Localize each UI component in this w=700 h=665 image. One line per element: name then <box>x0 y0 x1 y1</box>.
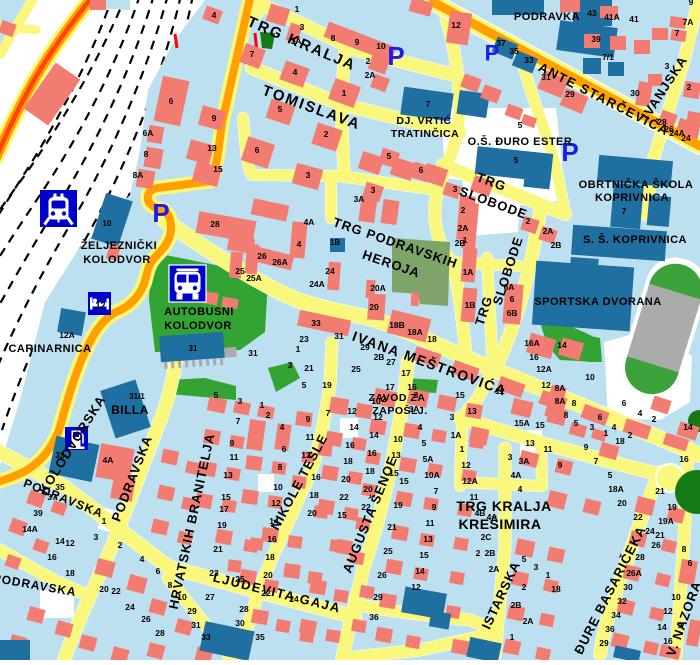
svg-text:22: 22 <box>111 586 121 596</box>
svg-text:3: 3 <box>450 412 455 422</box>
svg-text:KOLODVOR: KOLODVOR <box>83 254 151 266</box>
svg-text:15: 15 <box>455 390 465 400</box>
svg-text:14A: 14A <box>22 524 38 534</box>
svg-text:10: 10 <box>103 219 112 228</box>
svg-text:5: 5 <box>518 120 523 130</box>
svg-text:16: 16 <box>679 454 689 464</box>
svg-text:SPORTSKA DVORANA: SPORTSKA DVORANA <box>534 296 661 308</box>
svg-text:24: 24 <box>289 594 299 604</box>
svg-text:4A: 4A <box>304 217 315 227</box>
svg-text:28: 28 <box>239 604 249 614</box>
svg-text:14: 14 <box>349 422 359 432</box>
svg-text:1B: 1B <box>465 300 476 310</box>
svg-text:18: 18 <box>615 436 625 446</box>
svg-text:1: 1 <box>296 344 301 354</box>
svg-text:31/1: 31/1 <box>129 392 145 401</box>
svg-text:21: 21 <box>655 530 665 540</box>
svg-text:3: 3 <box>306 170 311 180</box>
svg-text:15: 15 <box>221 492 231 502</box>
svg-text:26: 26 <box>257 251 267 261</box>
svg-text:14: 14 <box>557 340 567 350</box>
svg-text:2: 2 <box>461 205 466 215</box>
svg-text:4: 4 <box>280 422 285 432</box>
svg-text:6B: 6B <box>507 308 518 318</box>
svg-text:5: 5 <box>522 554 527 564</box>
svg-text:12: 12 <box>373 412 383 422</box>
svg-text:12: 12 <box>461 460 471 470</box>
svg-text:DJ. VRTIĆ: DJ. VRTIĆ <box>396 114 451 127</box>
svg-text:30: 30 <box>623 582 633 592</box>
svg-text:43: 43 <box>587 8 597 18</box>
svg-text:KOLODVOR: KOLODVOR <box>164 320 232 332</box>
svg-text:7: 7 <box>236 416 241 426</box>
svg-text:8: 8 <box>564 410 569 420</box>
svg-text:4A: 4A <box>487 512 498 522</box>
svg-text:3: 3 <box>414 390 419 400</box>
svg-text:3: 3 <box>238 396 243 406</box>
svg-text:2B: 2B <box>551 240 562 250</box>
svg-text:29: 29 <box>360 342 370 352</box>
svg-text:15: 15 <box>337 510 347 520</box>
svg-text:2B: 2B <box>374 352 385 362</box>
svg-text:37: 37 <box>47 492 57 502</box>
svg-text:8: 8 <box>682 544 687 554</box>
svg-text:2B: 2B <box>485 548 496 558</box>
svg-text:3A: 3A <box>409 404 420 414</box>
svg-text:14: 14 <box>683 422 693 432</box>
svg-text:2: 2 <box>366 56 371 66</box>
svg-text:22: 22 <box>361 502 371 512</box>
svg-text:30: 30 <box>235 618 245 628</box>
svg-text:P: P <box>152 198 169 228</box>
svg-text:17: 17 <box>219 504 229 514</box>
svg-text:16: 16 <box>47 552 57 562</box>
svg-text:21: 21 <box>213 544 223 554</box>
svg-text:33: 33 <box>56 451 65 460</box>
svg-text:31: 31 <box>334 331 344 341</box>
svg-text:6: 6 <box>688 558 693 568</box>
svg-text:11: 11 <box>426 518 435 528</box>
svg-text:2: 2 <box>266 410 271 420</box>
svg-text:16: 16 <box>311 472 321 482</box>
svg-text:6: 6 <box>419 165 424 175</box>
svg-text:AUTOBUSNI: AUTOBUSNI <box>164 306 234 318</box>
svg-text:18: 18 <box>65 568 75 578</box>
svg-text:35: 35 <box>55 482 65 492</box>
svg-text:2C: 2C <box>481 532 492 542</box>
svg-text:18: 18 <box>343 456 353 466</box>
svg-text:2: 2 <box>628 430 633 440</box>
svg-text:5: 5 <box>214 390 219 400</box>
svg-text:20: 20 <box>341 474 351 484</box>
svg-text:5: 5 <box>387 151 392 161</box>
svg-text:22: 22 <box>633 512 643 522</box>
svg-text:12: 12 <box>411 582 421 592</box>
svg-text:28: 28 <box>635 552 645 562</box>
svg-text:31: 31 <box>248 348 258 358</box>
svg-text:34: 34 <box>611 610 621 620</box>
svg-text:16: 16 <box>663 636 673 646</box>
svg-text:3: 3 <box>288 360 293 370</box>
svg-text:10: 10 <box>393 434 403 444</box>
svg-text:26A: 26A <box>272 257 288 267</box>
svg-text:1: 1 <box>342 88 347 98</box>
svg-text:9: 9 <box>306 414 311 424</box>
svg-text:31: 31 <box>541 72 551 82</box>
svg-text:16: 16 <box>345 440 355 450</box>
svg-text:2: 2 <box>118 540 123 550</box>
svg-text:6: 6 <box>169 96 174 106</box>
svg-text:3: 3 <box>300 22 305 32</box>
svg-text:21: 21 <box>387 522 397 532</box>
svg-text:18: 18 <box>365 466 375 476</box>
svg-text:11: 11 <box>306 432 315 442</box>
svg-text:4A: 4A <box>103 455 114 465</box>
svg-text:30: 30 <box>630 88 640 98</box>
svg-text:17: 17 <box>385 382 395 392</box>
svg-text:15: 15 <box>535 420 545 430</box>
svg-text:2: 2 <box>652 414 657 424</box>
svg-text:26: 26 <box>377 570 387 580</box>
svg-text:8: 8 <box>572 398 577 408</box>
svg-text:2A: 2A <box>489 564 500 574</box>
svg-text:S. Š. KOPRIVNICA: S. Š. KOPRIVNICA <box>583 233 687 246</box>
svg-text:15: 15 <box>419 550 429 560</box>
svg-text:20: 20 <box>99 584 109 594</box>
svg-text:4: 4 <box>638 408 643 418</box>
svg-text:4B: 4B <box>475 508 486 518</box>
svg-text:10: 10 <box>671 592 681 602</box>
svg-text:15: 15 <box>213 164 223 174</box>
svg-text:27: 27 <box>386 357 396 367</box>
svg-text:1: 1 <box>604 428 609 438</box>
svg-text:33: 33 <box>311 318 321 328</box>
svg-text:14: 14 <box>369 430 379 440</box>
svg-text:5: 5 <box>302 380 307 390</box>
svg-text:7: 7 <box>622 207 627 216</box>
svg-text:13: 13 <box>223 470 233 480</box>
svg-text:6: 6 <box>156 566 161 576</box>
svg-text:1: 1 <box>295 4 300 14</box>
svg-text:1: 1 <box>510 632 515 642</box>
svg-text:KOPRIVNICA: KOPRIVNICA <box>595 192 669 204</box>
svg-text:P: P <box>387 41 404 71</box>
svg-text:12: 12 <box>65 538 75 548</box>
svg-text:3A: 3A <box>291 36 302 46</box>
svg-text:7/1: 7/1 <box>602 52 614 62</box>
svg-text:17: 17 <box>401 368 411 378</box>
svg-text:33: 33 <box>524 55 534 65</box>
svg-text:41: 41 <box>629 14 639 24</box>
svg-text:3: 3 <box>453 184 458 194</box>
svg-text:29: 29 <box>187 606 197 616</box>
svg-text:2A: 2A <box>458 223 469 233</box>
svg-text:19A: 19A <box>658 516 674 526</box>
svg-text:18B: 18B <box>389 320 405 330</box>
svg-text:12: 12 <box>271 498 281 508</box>
svg-text:7: 7 <box>426 100 431 109</box>
svg-text:5: 5 <box>514 156 519 165</box>
svg-text:31: 31 <box>189 344 198 353</box>
svg-text:27: 27 <box>205 592 215 602</box>
svg-text:5: 5 <box>278 104 283 114</box>
svg-text:36: 36 <box>605 624 615 634</box>
svg-text:14: 14 <box>55 536 65 546</box>
svg-text:5A: 5A <box>423 454 434 464</box>
svg-text:26: 26 <box>141 614 151 624</box>
svg-text:3: 3 <box>94 532 99 542</box>
svg-text:8A: 8A <box>133 170 144 180</box>
svg-text:2: 2 <box>687 82 692 92</box>
svg-text:9: 9 <box>432 502 437 512</box>
svg-text:15: 15 <box>399 476 409 486</box>
svg-text:11: 11 <box>470 492 479 502</box>
svg-text:21: 21 <box>655 486 665 496</box>
svg-text:12A: 12A <box>462 476 478 486</box>
svg-text:4: 4 <box>140 554 145 564</box>
svg-text:9: 9 <box>678 620 683 630</box>
svg-text:12A: 12A <box>59 330 75 340</box>
svg-text:10: 10 <box>585 372 595 382</box>
svg-text:29: 29 <box>599 638 609 648</box>
svg-text:23: 23 <box>299 334 309 344</box>
svg-text:24: 24 <box>325 266 335 276</box>
svg-text:8: 8 <box>278 462 283 472</box>
svg-text:CARINARNICA: CARINARNICA <box>8 343 91 355</box>
svg-text:35: 35 <box>509 46 519 56</box>
svg-text:19: 19 <box>667 502 677 512</box>
svg-text:O.Š. ĐURO ESTER: O.Š. ĐURO ESTER <box>468 135 573 148</box>
svg-text:1: 1 <box>260 400 265 410</box>
svg-text:4: 4 <box>293 67 298 77</box>
svg-text:3: 3 <box>371 185 376 195</box>
svg-text:26A: 26A <box>626 568 642 578</box>
svg-text:19: 19 <box>393 500 403 510</box>
svg-text:6: 6 <box>282 444 287 454</box>
svg-text:41A: 41A <box>604 12 620 22</box>
svg-text:4A: 4A <box>511 470 522 480</box>
svg-text:3A: 3A <box>519 456 530 466</box>
svg-text:OBRTNIČKA ŠKOLA: OBRTNIČKA ŠKOLA <box>579 178 694 191</box>
svg-text:5: 5 <box>574 418 579 428</box>
svg-text:9: 9 <box>689 0 694 7</box>
svg-text:18A: 18A <box>608 484 624 494</box>
svg-text:7A: 7A <box>683 17 694 27</box>
svg-text:13: 13 <box>467 406 477 416</box>
svg-text:3: 3 <box>665 61 670 71</box>
svg-text:20: 20 <box>263 570 273 580</box>
svg-text:7: 7 <box>250 49 255 59</box>
svg-text:20A: 20A <box>370 283 386 293</box>
svg-text:39: 39 <box>33 508 43 518</box>
svg-text:25A: 25A <box>246 273 262 283</box>
svg-text:6: 6 <box>622 398 627 408</box>
svg-text:32: 32 <box>617 596 627 606</box>
svg-text:8A: 8A <box>555 383 566 393</box>
svg-text:25: 25 <box>383 546 393 556</box>
svg-text:11: 11 <box>230 452 239 462</box>
svg-text:16: 16 <box>367 448 377 458</box>
svg-text:20: 20 <box>617 498 627 508</box>
svg-text:10: 10 <box>376 41 386 51</box>
svg-text:4: 4 <box>418 422 423 432</box>
svg-text:9: 9 <box>558 460 563 470</box>
svg-text:20: 20 <box>369 302 379 312</box>
svg-text:9: 9 <box>355 37 360 47</box>
svg-text:20: 20 <box>307 508 317 518</box>
svg-text:39: 39 <box>591 34 601 44</box>
svg-text:9: 9 <box>212 113 217 123</box>
svg-text:28: 28 <box>155 628 165 638</box>
svg-text:5: 5 <box>608 470 613 480</box>
svg-text:26: 26 <box>651 540 661 550</box>
svg-text:4: 4 <box>518 484 523 494</box>
svg-text:2: 2 <box>522 582 527 592</box>
svg-text:22: 22 <box>339 492 349 502</box>
svg-text:1A: 1A <box>451 430 462 440</box>
svg-text:2B: 2B <box>455 238 466 248</box>
svg-text:15A: 15A <box>514 418 530 428</box>
svg-text:24A: 24A <box>309 279 325 289</box>
svg-text:2B: 2B <box>511 600 522 610</box>
svg-text:6: 6 <box>255 145 260 155</box>
svg-text:8: 8 <box>331 33 336 43</box>
svg-text:2: 2 <box>526 216 531 226</box>
svg-text:37: 37 <box>496 38 506 48</box>
svg-text:22: 22 <box>261 588 271 598</box>
svg-text:18: 18 <box>309 490 319 500</box>
svg-text:25: 25 <box>351 364 361 374</box>
svg-text:12: 12 <box>663 606 673 616</box>
svg-text:16: 16 <box>529 352 539 362</box>
svg-text:KREŠIMIRA: KREŠIMIRA <box>458 515 541 532</box>
svg-text:13: 13 <box>301 450 311 460</box>
svg-text:33: 33 <box>201 632 211 642</box>
svg-text:12: 12 <box>541 380 551 390</box>
svg-text:36: 36 <box>369 612 379 622</box>
svg-text:3: 3 <box>590 422 595 432</box>
svg-text:18: 18 <box>427 334 437 344</box>
svg-text:3A: 3A <box>354 194 365 204</box>
svg-text:18: 18 <box>265 552 275 562</box>
svg-text:14: 14 <box>269 516 279 526</box>
svg-text:1: 1 <box>460 444 465 454</box>
svg-text:1: 1 <box>102 516 107 526</box>
svg-text:29: 29 <box>565 89 575 99</box>
svg-text:1A: 1A <box>463 267 474 277</box>
svg-text:16: 16 <box>267 534 277 544</box>
svg-text:18A: 18A <box>407 327 423 337</box>
svg-text:BILLA: BILLA <box>111 403 149 417</box>
svg-text:PODRAVKA: PODRAVKA <box>514 11 580 23</box>
svg-text:24: 24 <box>681 133 691 143</box>
svg-text:1: 1 <box>546 570 551 580</box>
svg-text:3: 3 <box>534 562 539 572</box>
svg-text:13: 13 <box>525 438 535 448</box>
svg-text:24: 24 <box>125 602 135 612</box>
svg-text:9: 9 <box>584 442 589 452</box>
svg-text:7: 7 <box>594 456 599 466</box>
svg-text:6A: 6A <box>143 128 154 138</box>
svg-text:12A: 12A <box>536 364 552 374</box>
svg-text:12: 12 <box>451 20 461 30</box>
svg-text:10: 10 <box>177 592 187 602</box>
svg-text:16A: 16A <box>524 338 540 348</box>
svg-text:8: 8 <box>168 580 173 590</box>
svg-text:10A: 10A <box>424 470 440 480</box>
svg-text:2: 2 <box>382 394 387 404</box>
svg-text:1B: 1B <box>330 238 340 247</box>
svg-text:19: 19 <box>322 380 332 390</box>
svg-text:11: 11 <box>544 444 553 454</box>
svg-text:29: 29 <box>373 592 383 602</box>
svg-text:25: 25 <box>235 266 245 276</box>
svg-text:14: 14 <box>415 566 425 576</box>
svg-text:4: 4 <box>612 422 617 432</box>
svg-text:6: 6 <box>598 412 603 422</box>
svg-text:12: 12 <box>95 301 105 311</box>
svg-text:24: 24 <box>645 526 655 536</box>
svg-text:28: 28 <box>210 219 220 229</box>
svg-text:13: 13 <box>423 534 433 544</box>
svg-text:19: 19 <box>217 520 227 530</box>
svg-text:2: 2 <box>324 129 329 139</box>
svg-text:20: 20 <box>363 484 373 494</box>
svg-text:7: 7 <box>326 408 331 418</box>
svg-text:7: 7 <box>675 28 680 38</box>
svg-text:2: 2 <box>476 548 481 558</box>
svg-text:12: 12 <box>347 406 357 416</box>
svg-text:7: 7 <box>434 486 439 496</box>
svg-text:9: 9 <box>230 438 235 448</box>
svg-text:3: 3 <box>508 452 513 462</box>
svg-text:18: 18 <box>551 584 561 594</box>
svg-text:31: 31 <box>191 620 201 630</box>
svg-text:ŽELJEZNIČKI: ŽELJEZNIČKI <box>81 239 157 252</box>
svg-text:10: 10 <box>273 482 283 492</box>
svg-text:2A: 2A <box>365 70 376 80</box>
svg-text:5: 5 <box>422 438 427 448</box>
svg-text:12: 12 <box>495 386 505 396</box>
svg-text:13: 13 <box>391 450 401 460</box>
svg-text:21: 21 <box>304 363 314 373</box>
svg-text:25: 25 <box>235 574 245 584</box>
svg-text:8A: 8A <box>555 396 566 406</box>
svg-text:8: 8 <box>144 149 149 159</box>
svg-text:35: 35 <box>255 632 265 642</box>
svg-text:6: 6 <box>510 294 515 304</box>
svg-text:15: 15 <box>389 468 399 478</box>
svg-text:4: 4 <box>297 239 302 249</box>
svg-text:TRATINČICA: TRATINČICA <box>391 127 459 140</box>
svg-text:13: 13 <box>207 143 217 153</box>
svg-text:10: 10 <box>371 396 381 406</box>
svg-text:2A: 2A <box>523 616 534 626</box>
svg-text:4: 4 <box>212 10 217 20</box>
svg-text:6A: 6A <box>504 282 515 292</box>
svg-text:23: 23 <box>209 568 219 578</box>
svg-text:14: 14 <box>657 622 667 632</box>
svg-text:2A: 2A <box>543 226 554 236</box>
